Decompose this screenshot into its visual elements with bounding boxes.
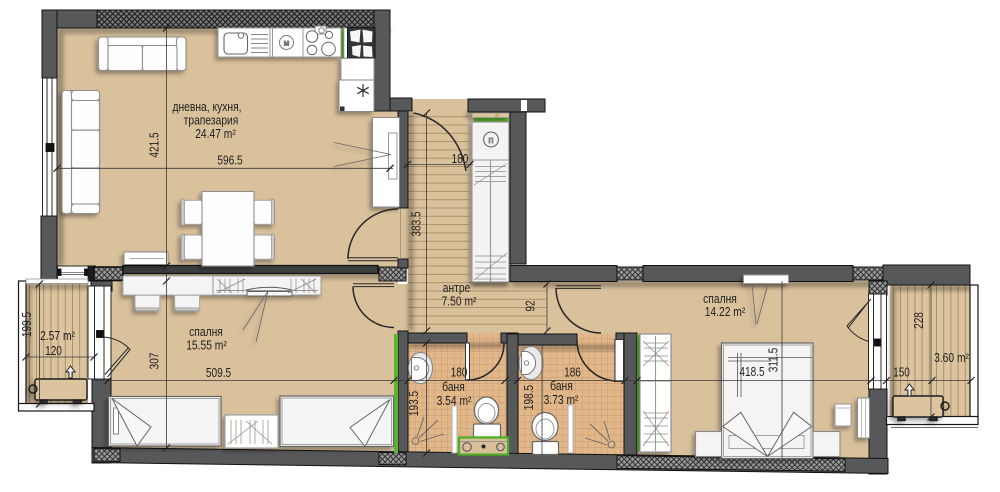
svg-text:14.22 m²: 14.22 m² (705, 304, 746, 320)
svg-text:24.47 m²: 24.47 m² (195, 126, 236, 142)
svg-text:3.73 m²: 3.73 m² (544, 392, 579, 408)
svg-text:3.60 m²: 3.60 m² (934, 350, 969, 366)
svg-text:228: 228 (913, 312, 926, 329)
svg-text:383.5: 383.5 (411, 211, 424, 236)
svg-text:п: п (488, 135, 493, 146)
svg-text:186: 186 (564, 367, 581, 380)
svg-text:150: 150 (893, 367, 910, 380)
svg-text:509.5: 509.5 (206, 367, 231, 380)
svg-text:193.5: 193.5 (408, 391, 421, 416)
svg-text:120: 120 (45, 345, 62, 358)
svg-text:307: 307 (149, 353, 162, 370)
svg-text:198.5: 198.5 (523, 385, 536, 410)
svg-text:92: 92 (525, 300, 538, 311)
svg-text:418.5: 418.5 (739, 366, 764, 379)
svg-text:596.5: 596.5 (217, 154, 242, 167)
svg-text:311.5: 311.5 (768, 348, 781, 372)
svg-text:м: м (284, 39, 290, 48)
svg-text:421.5: 421.5 (149, 132, 162, 157)
svg-text:7.50 m²: 7.50 m² (442, 293, 477, 309)
svg-text:15.55 m²: 15.55 m² (186, 337, 227, 353)
svg-text:180: 180 (451, 367, 468, 380)
svg-text:2.57 m²: 2.57 m² (40, 328, 75, 344)
svg-text:3.54 m²: 3.54 m² (437, 393, 472, 409)
svg-text:199.5: 199.5 (21, 312, 34, 337)
svg-text:180: 180 (452, 153, 469, 166)
